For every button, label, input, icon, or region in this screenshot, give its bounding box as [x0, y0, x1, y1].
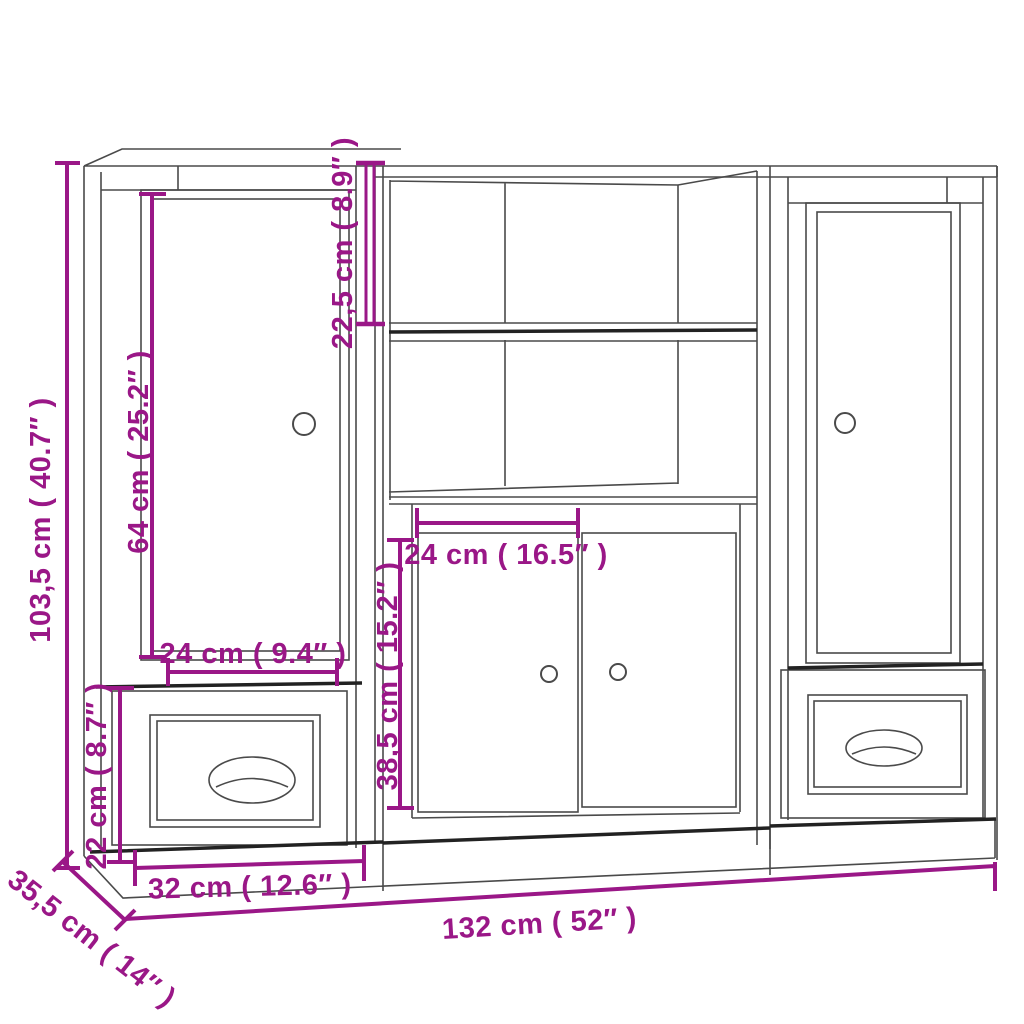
center-left-door	[418, 533, 578, 812]
dimension-labels: 103,5 cm ( 40.7″ ) 64 cm ( 25.2″ ) 22,5 …	[1, 137, 637, 1014]
dim-top-compartment-line	[366, 165, 374, 323]
center-unit-shadow-lines	[383, 330, 770, 843]
overall-height-label: 103,5 cm ( 40.7″ )	[25, 397, 57, 642]
overall-width-label: 132 cm ( 52″ )	[441, 902, 638, 946]
left-cabinet-door-panel	[152, 199, 340, 651]
right-door-knob	[835, 413, 855, 433]
left-drawer-bevel-inner	[157, 721, 313, 820]
product-dimension-image: 103,5 cm ( 40.7″ ) 64 cm ( 25.2″ ) 22,5 …	[0, 0, 1024, 1024]
left-drawer-bevel-outer	[150, 715, 320, 827]
top-boards	[84, 149, 997, 177]
right-drawer-front	[781, 670, 985, 818]
right-drawer-bevel-outer	[808, 695, 967, 794]
center-right-door-knob	[610, 664, 626, 680]
left-cabinet-door	[141, 190, 349, 660]
right-cabinet-door-panel	[817, 212, 951, 653]
shadow-lines	[90, 330, 996, 852]
right-drawer-handle	[846, 730, 922, 766]
left-drawer-handle-lip	[216, 779, 288, 788]
center-right-door	[582, 533, 736, 807]
side-door-width-label: 24 cm ( 9.4″ )	[160, 638, 347, 670]
center-door-width-label: 24 cm ( 16.5″ )	[404, 539, 608, 571]
center-door-height-label: 38,5 cm ( 15.2″ )	[372, 562, 404, 791]
drawer-height-label: 22 cm ( 8.7″ )	[81, 683, 113, 870]
dim-overall-height-line	[55, 163, 80, 868]
dimension-diagram-svg: 103,5 cm ( 40.7″ ) 64 cm ( 25.2″ ) 22,5 …	[0, 0, 1024, 1024]
left-drawer-handle	[209, 757, 295, 803]
side-door-height-label: 64 cm ( 25.2″ )	[123, 350, 155, 554]
right-cabinet-shadow-lines	[770, 664, 996, 826]
top-compartment-height-label: 22,5 cm ( 8.9″ )	[327, 137, 359, 349]
center-left-door-knob	[541, 666, 557, 682]
center-unit-frame	[383, 166, 757, 845]
drawer-width-label: 32 cm ( 12.6″ )	[148, 868, 352, 905]
left-door-knob	[293, 413, 315, 435]
right-drawer-handle-lip	[852, 747, 916, 754]
right-drawer-bevel-inner	[814, 701, 961, 787]
right-cabinet-frame	[770, 166, 997, 860]
dim-top-compartment-caps	[356, 163, 385, 324]
right-cabinet-door	[806, 203, 960, 663]
left-drawer-front	[112, 691, 347, 845]
